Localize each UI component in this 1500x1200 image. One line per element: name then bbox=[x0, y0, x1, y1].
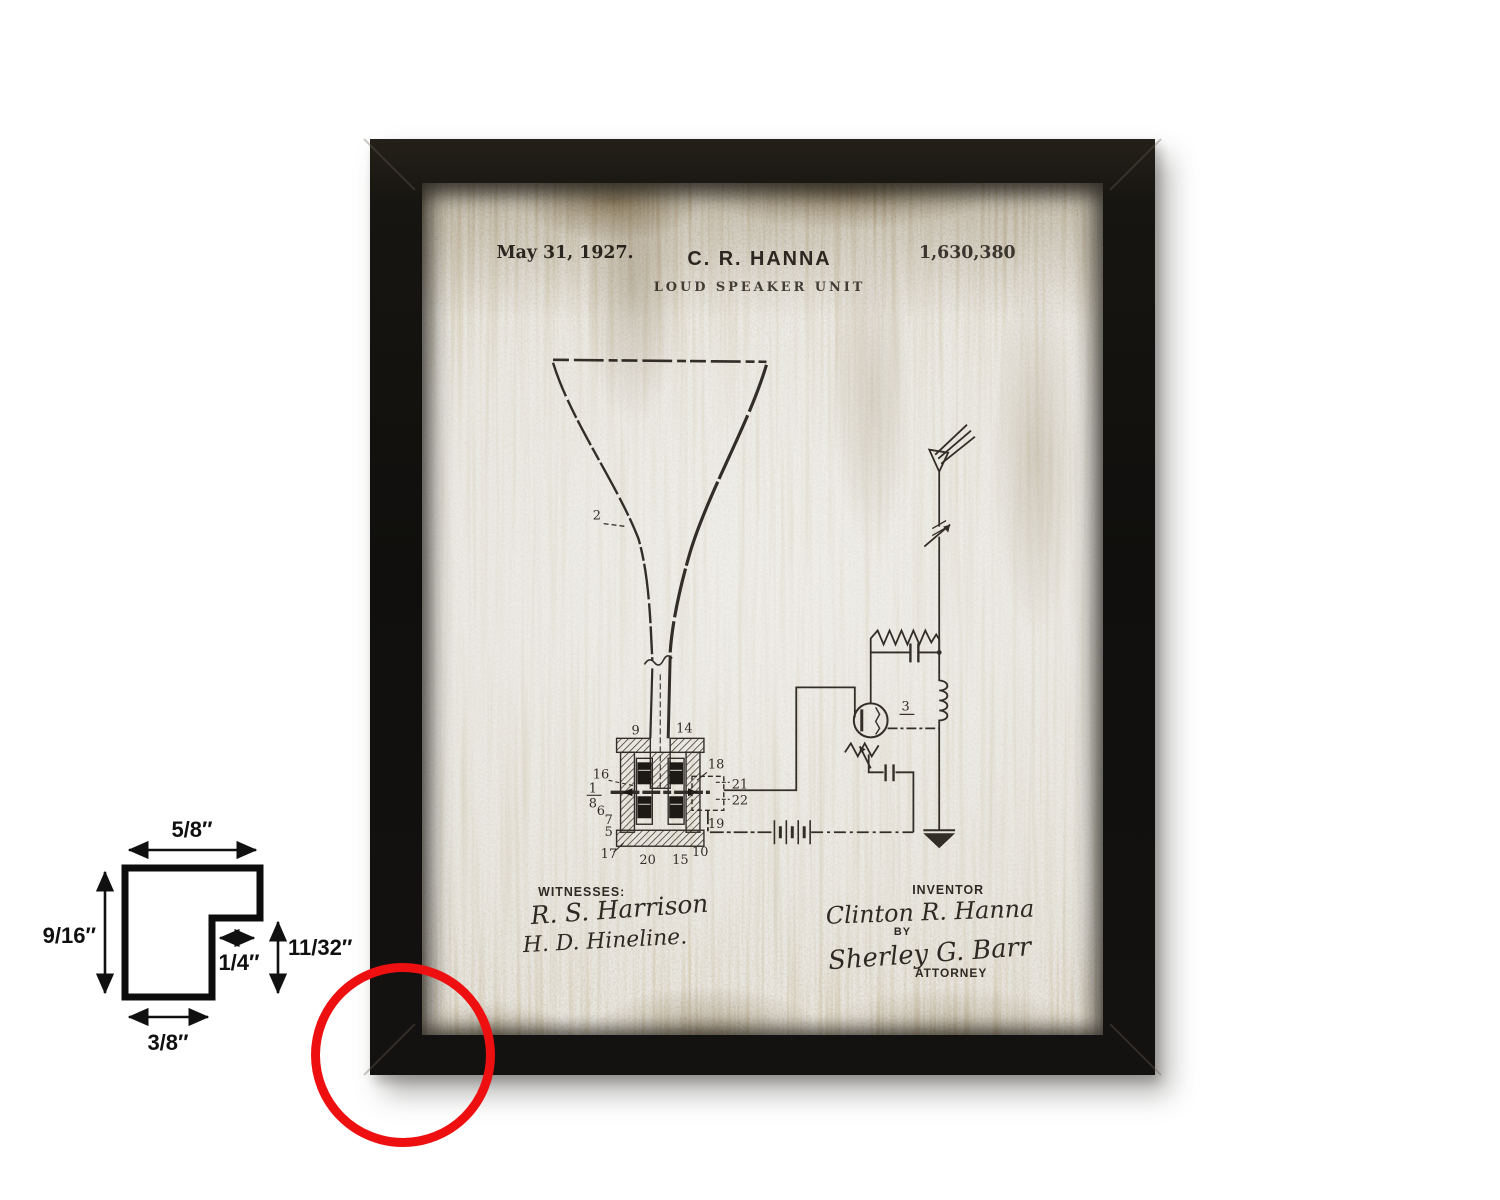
horn-figure: 2 bbox=[553, 360, 766, 788]
svg-text:17: 17 bbox=[601, 847, 617, 862]
svg-text:19: 19 bbox=[708, 817, 724, 832]
svg-text:16: 16 bbox=[593, 767, 609, 782]
svg-text:1: 1 bbox=[589, 781, 597, 796]
highlight-circle bbox=[311, 963, 495, 1147]
svg-text:5: 5 bbox=[605, 825, 613, 840]
dim-step-height: 11/32″ bbox=[288, 935, 353, 960]
svg-text:22: 22 bbox=[732, 793, 748, 808]
inventor-signature: Clinton R. Hanna bbox=[825, 894, 1034, 929]
patent-print-paper: May 31, 1927. C. R. HANNA 1,630,380 LOUD… bbox=[422, 183, 1103, 1035]
witness-signature-2: H. D. Hineline. bbox=[521, 924, 687, 958]
patent-date: May 31, 1927. bbox=[496, 243, 633, 263]
svg-text:14: 14 bbox=[676, 721, 692, 736]
driver-unit-figure bbox=[611, 738, 724, 846]
patent-drawing: May 31, 1927. C. R. HANNA 1,630,380 LOUD… bbox=[422, 183, 1103, 1035]
by-label: BY bbox=[894, 926, 911, 938]
patent-number: 1,630,380 bbox=[919, 243, 1016, 263]
frame-miter-joint bbox=[363, 138, 415, 190]
svg-text:20: 20 bbox=[639, 853, 655, 868]
frame-miter-joint bbox=[1109, 138, 1161, 190]
frame-miter-joint bbox=[1109, 1023, 1161, 1075]
svg-text:15: 15 bbox=[672, 853, 688, 868]
dim-left-height: 9/16″ bbox=[43, 923, 97, 948]
circuit-ref-label: 3 bbox=[901, 699, 909, 714]
patent-footer: WITNESSES: R. S. Harrison H. D. Hineline… bbox=[521, 883, 1034, 980]
picture-frame: May 31, 1927. C. R. HANNA 1,630,380 LOUD… bbox=[370, 139, 1155, 1075]
patent-title: LOUD SPEAKER UNIT bbox=[654, 280, 866, 295]
product-photo: 5/8″ 9/16″ 1/4″ 11/32″ 3/8″ bbox=[0, 0, 1500, 1200]
dim-bottom-width: 3/8″ bbox=[147, 1030, 189, 1055]
dim-step-width: 1/4″ bbox=[218, 950, 260, 975]
patent-inventor-name: C. R. HANNA bbox=[687, 248, 831, 270]
svg-text:10: 10 bbox=[692, 845, 708, 860]
horn-ref-label: 2 bbox=[593, 509, 601, 524]
attorney-label: ATTORNEY bbox=[915, 966, 987, 980]
moulding-profile-shape bbox=[125, 868, 260, 997]
svg-text:18: 18 bbox=[708, 757, 724, 772]
inventor-label: INVENTOR bbox=[912, 883, 984, 897]
dim-top-width: 5/8″ bbox=[171, 817, 213, 842]
svg-text:9: 9 bbox=[631, 723, 639, 738]
